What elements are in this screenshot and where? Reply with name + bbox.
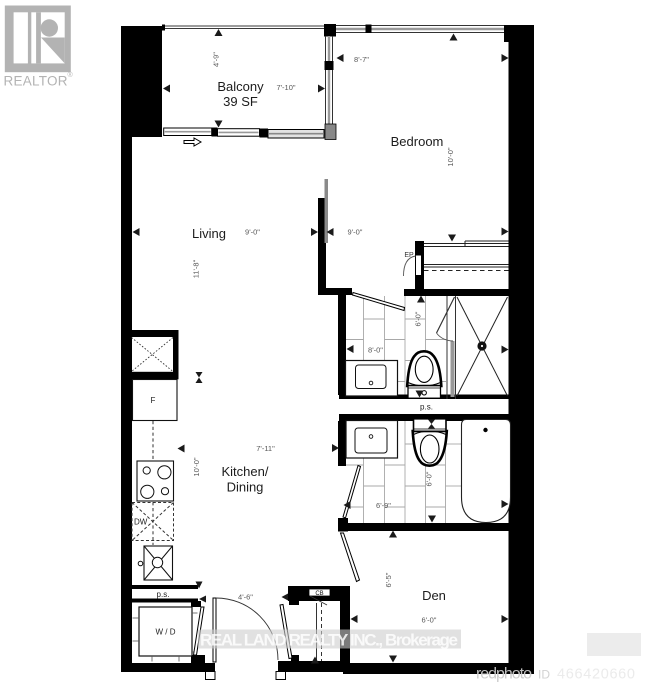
svg-text:EP: EP — [404, 252, 414, 259]
svg-text:6'-0": 6'-0" — [414, 311, 423, 326]
svg-text:REALTOR: REALTOR — [4, 74, 68, 89]
svg-text:6'-5": 6'-5" — [384, 572, 393, 587]
svg-text:11'-8": 11'-8" — [192, 259, 201, 278]
svg-text:W / D: W / D — [156, 628, 176, 637]
svg-text:7'-10": 7'-10" — [276, 83, 295, 92]
svg-text:Dining: Dining — [227, 480, 264, 495]
svg-text:39 SF: 39 SF — [223, 94, 258, 109]
svg-text:p.s.: p.s. — [420, 403, 433, 412]
svg-text:F: F — [151, 396, 156, 405]
svg-text:redphoto: redphoto — [476, 666, 532, 683]
svg-text:6'-0": 6'-0" — [422, 616, 437, 625]
svg-text:Kitchen/: Kitchen/ — [222, 464, 269, 479]
svg-text:6'-9": 6'-9" — [376, 501, 391, 510]
svg-text:6'-0": 6'-0" — [425, 471, 434, 486]
svg-text:9'-0": 9'-0" — [245, 228, 260, 237]
svg-text:4'-6": 4'-6" — [238, 593, 253, 602]
svg-text:7'-11": 7'-11" — [256, 444, 275, 453]
svg-text:10'-0": 10'-0" — [192, 457, 201, 476]
svg-text:4'-9": 4'-9" — [212, 52, 221, 67]
svg-text:DW: DW — [134, 518, 148, 527]
svg-text:CB: CB — [315, 591, 323, 597]
svg-text:REAL LAND REALTY INC., Brokera: REAL LAND REALTY INC., Brokerage — [200, 631, 458, 650]
svg-text:Living: Living — [192, 226, 226, 241]
svg-text:Balcony: Balcony — [217, 79, 264, 94]
svg-text:9'-0": 9'-0" — [348, 228, 363, 237]
svg-text:466420660: 466420660 — [557, 667, 635, 683]
svg-text:8'-0": 8'-0" — [368, 346, 383, 355]
svg-text:8'-7": 8'-7" — [354, 55, 369, 64]
svg-text:p.s.: p.s. — [157, 590, 170, 599]
svg-text:®: ® — [68, 71, 74, 79]
svg-text:Bedroom: Bedroom — [391, 134, 444, 149]
svg-text:10'-0": 10'-0" — [446, 147, 455, 166]
svg-text:ID: ID — [538, 668, 550, 682]
svg-text:Den: Den — [422, 588, 446, 603]
